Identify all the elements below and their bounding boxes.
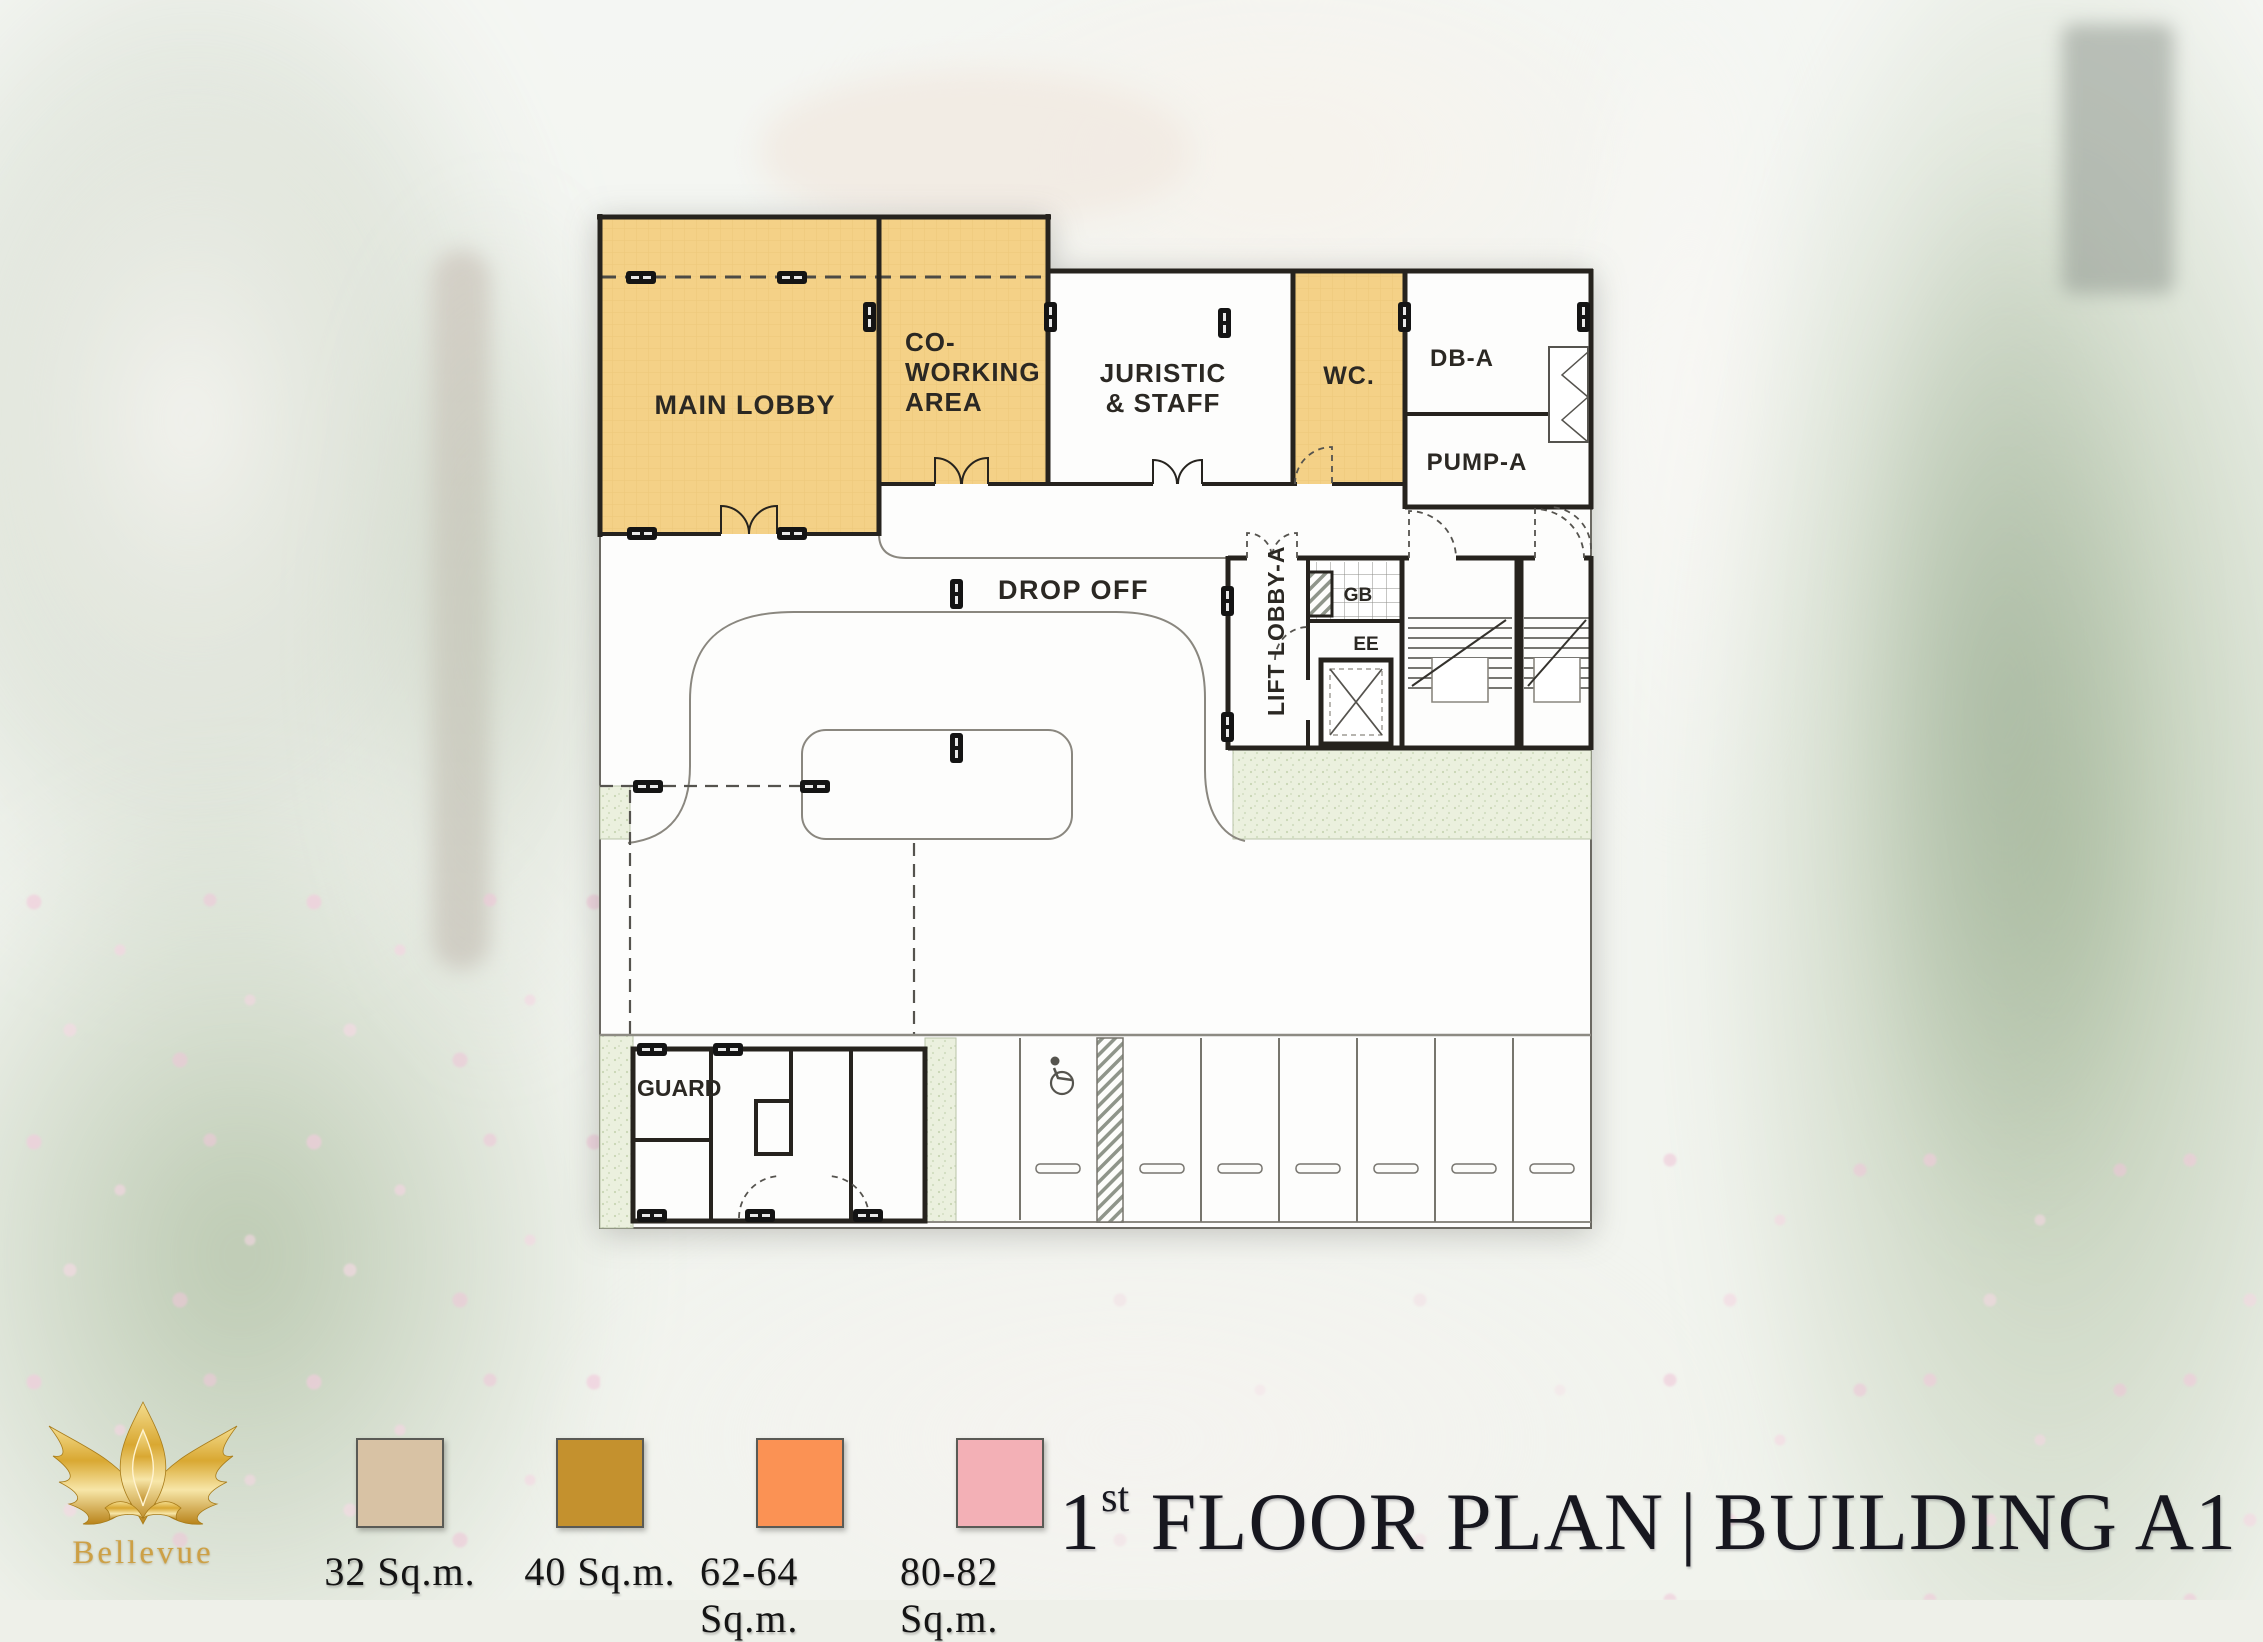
shaft-hatch <box>1308 572 1332 616</box>
db-label: DB-A <box>1430 345 1494 372</box>
floor-plan-drawing: MAIN LOBBY CO- WORKING AREA JURISTIC & S… <box>0 0 2263 1600</box>
juristic-label-2: & STAFF <box>1106 388 1221 418</box>
ee-label: EE <box>1353 634 1378 655</box>
legend-item-62-64: 62-64 Sq.m. <box>700 1438 900 1642</box>
legend-swatch-62-64 <box>756 1438 844 1528</box>
legend-item-40: 40 Sq.m. <box>500 1438 700 1642</box>
juristic-label-1: JURISTIC <box>1100 358 1226 388</box>
page-title: 1st FLOOR PLAN|BUILDING A1 <box>1059 1474 2237 1569</box>
lift-lobby-label: LIFT LOBBY-A <box>1263 546 1289 716</box>
title-divider: | <box>1664 1476 1713 1567</box>
unit-size-legend: 32 Sq.m. 40 Sq.m. 62-64 Sq.m. 80-82 Sq.m… <box>300 1438 1100 1642</box>
building-label: BUILDING A1 <box>1714 1476 2237 1567</box>
driveway-island <box>802 730 1072 839</box>
elevator <box>1321 660 1391 744</box>
hatched-divider-strip <box>1097 1038 1123 1222</box>
legend-label-62-64: 62-64 Sq.m. <box>700 1548 900 1642</box>
brand-name: Bellevue <box>38 1535 248 1572</box>
co-working-label-3: AREA <box>905 387 983 417</box>
main-lobby-room <box>600 217 879 534</box>
legend-label-32: 32 Sq.m. <box>324 1548 475 1595</box>
brand-logo: Bellevue <box>38 1396 248 1596</box>
floor-ordinal-suffix: st <box>1101 1475 1129 1521</box>
brand-emblem-icon <box>43 1396 243 1536</box>
guard-label: GUARD <box>637 1075 721 1101</box>
co-working-label-2: WORKING <box>905 357 1041 387</box>
drop-off-label: DROP OFF <box>998 575 1149 605</box>
legend-label-40: 40 Sq.m. <box>524 1548 675 1595</box>
wc-label: WC. <box>1323 362 1375 390</box>
floor-number: 1 <box>1059 1476 1101 1567</box>
legend-swatch-80-82 <box>956 1438 1044 1528</box>
legend-swatch-32 <box>356 1438 444 1528</box>
gb-label: GB <box>1344 585 1373 606</box>
pump-label: PUMP-A <box>1427 449 1528 476</box>
legend-swatch-40 <box>556 1438 644 1528</box>
legend-item-32: 32 Sq.m. <box>300 1438 500 1642</box>
main-lobby-label: MAIN LOBBY <box>655 390 836 420</box>
db-closet <box>1549 347 1588 442</box>
co-working-label-1: CO- <box>905 327 956 357</box>
floor-plan-label: FLOOR PLAN <box>1151 1476 1664 1567</box>
